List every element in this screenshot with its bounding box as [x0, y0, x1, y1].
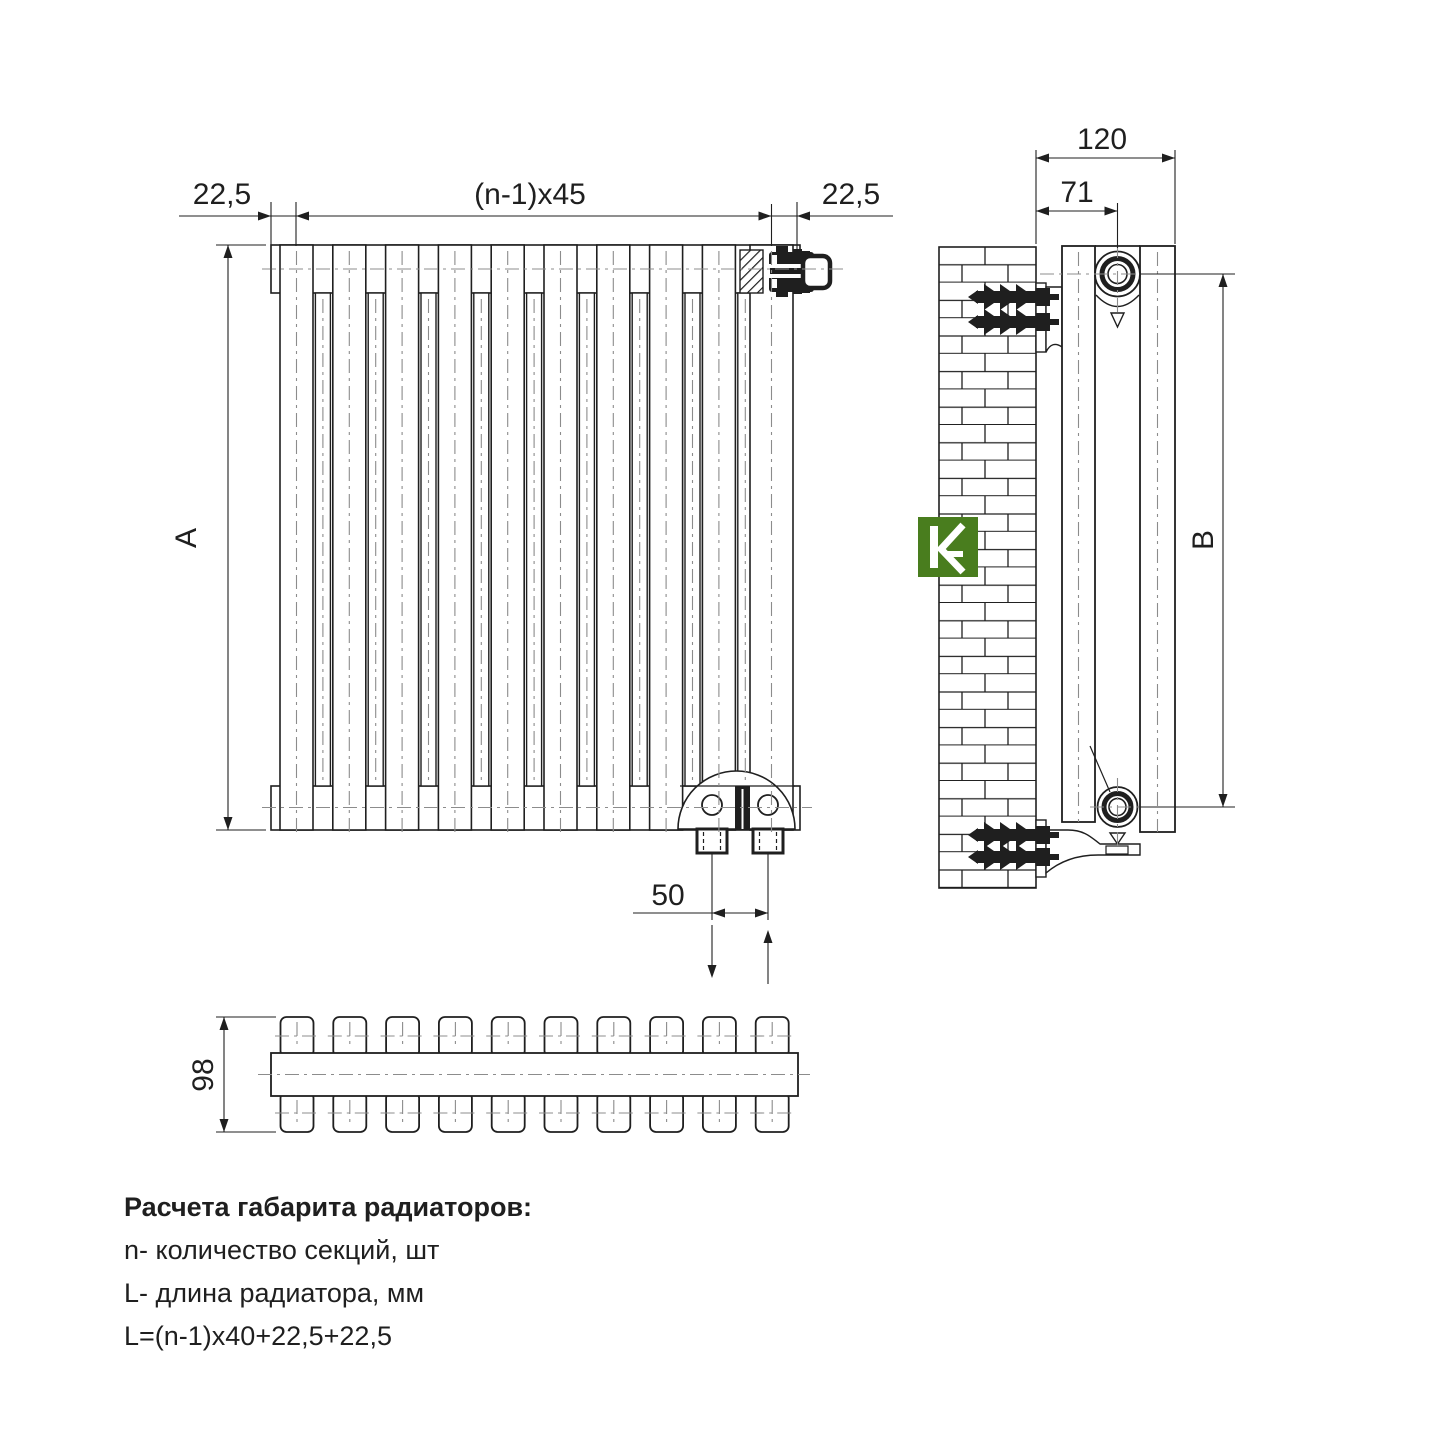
dim-label-height-B: B [1187, 530, 1220, 550]
dim-arrowhead [224, 245, 233, 258]
logo-square [918, 517, 978, 577]
notes-line-sections: n- количество секций, шт [124, 1229, 532, 1272]
dim-arrowhead [797, 212, 810, 221]
valve-detail [772, 255, 777, 264]
dim-label-height-A: A [170, 528, 203, 548]
dim-label-section-pitch: (n-1)x45 [474, 178, 586, 211]
dim-arrowhead [1219, 794, 1228, 807]
valve-clamp [803, 256, 830, 288]
dim-arrowhead [708, 965, 717, 978]
dim-arrowhead [712, 909, 725, 918]
notes-title: Расчета габарита радиаторов: [124, 1186, 532, 1229]
side-view [918, 246, 1175, 888]
valve-detail [772, 279, 777, 288]
valve-nub [776, 246, 788, 253]
dim-arrowhead [258, 212, 271, 221]
dim-arrowhead [1219, 274, 1228, 287]
dome-hole [758, 795, 778, 815]
notes-block: Расчета габарита радиаторов: n- количест… [124, 1186, 532, 1358]
dim-label-left-margin: 22,5 [193, 178, 251, 211]
kvant-logo [918, 517, 978, 577]
valve-assembly [740, 246, 830, 297]
inlet-nozzle [697, 829, 727, 853]
dim-arrowhead [755, 909, 768, 918]
top-hook-pin [1111, 313, 1124, 327]
dim-arrowhead [224, 817, 233, 830]
dim-label-spacing-50: 50 [651, 879, 684, 912]
valve-hatch-block [740, 250, 763, 293]
dim-label-axis-71: 71 [1060, 176, 1093, 209]
dim-arrowhead [1036, 207, 1049, 216]
dim-label-right-margin: 22,5 [822, 178, 880, 211]
front-view [271, 245, 830, 853]
dim-arrowhead [220, 1017, 229, 1030]
dim-arrowhead [296, 212, 309, 221]
dim-arrowhead [1105, 207, 1118, 216]
dim-label-depth-98: 98 [187, 1058, 220, 1091]
notes-line-length: L- длина радиатора, мм [124, 1272, 532, 1315]
dim-arrowhead [220, 1119, 229, 1132]
dim-arrowhead [759, 212, 772, 221]
dim-arrowhead [1162, 154, 1175, 163]
bottom-hook-tab [1106, 846, 1128, 854]
notes-line-formula: L=(n-1)x40+22,5+22,5 [124, 1315, 532, 1358]
dim-arrowhead [764, 930, 773, 943]
dim-arrowhead [1036, 154, 1049, 163]
dim-label-depth-120: 120 [1077, 123, 1127, 156]
outlet-nozzle [753, 829, 783, 853]
drawing-page: 22,5 (n-1)x45 22,5 120 71 A B 50 98 Расч… [0, 0, 1442, 1442]
